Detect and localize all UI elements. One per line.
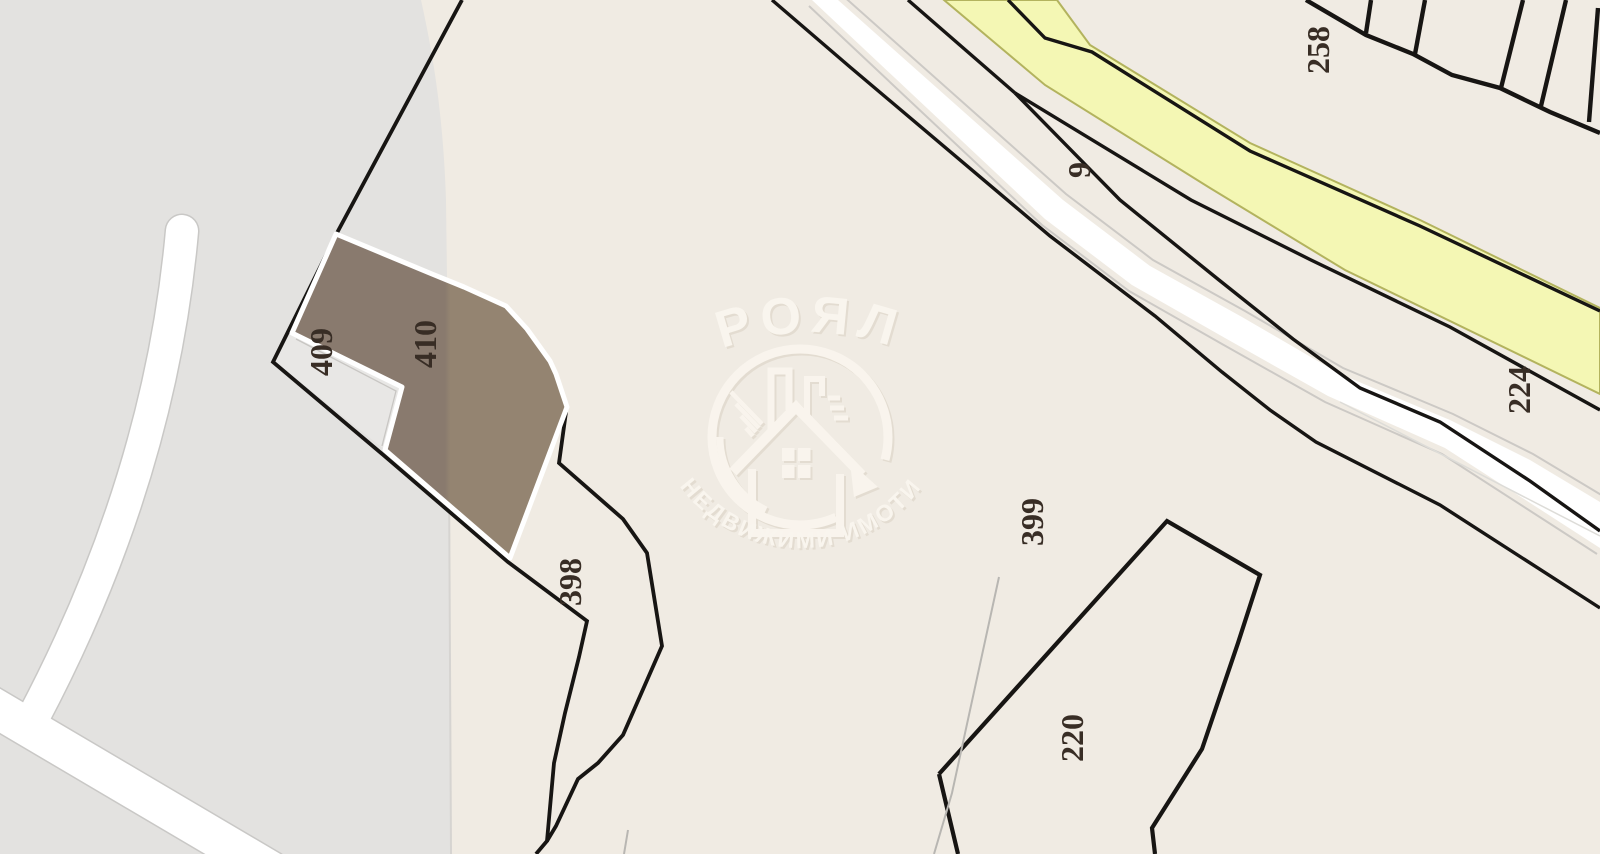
svg-text:258: 258 bbox=[1300, 26, 1336, 74]
svg-text:409: 409 bbox=[303, 328, 339, 376]
svg-text:224: 224 bbox=[1501, 366, 1537, 414]
svg-text:220: 220 bbox=[1054, 714, 1090, 762]
svg-text:9: 9 bbox=[1061, 162, 1097, 178]
svg-text:398: 398 bbox=[552, 558, 588, 606]
svg-text:410: 410 bbox=[407, 320, 443, 368]
svg-text:399: 399 bbox=[1014, 498, 1050, 546]
